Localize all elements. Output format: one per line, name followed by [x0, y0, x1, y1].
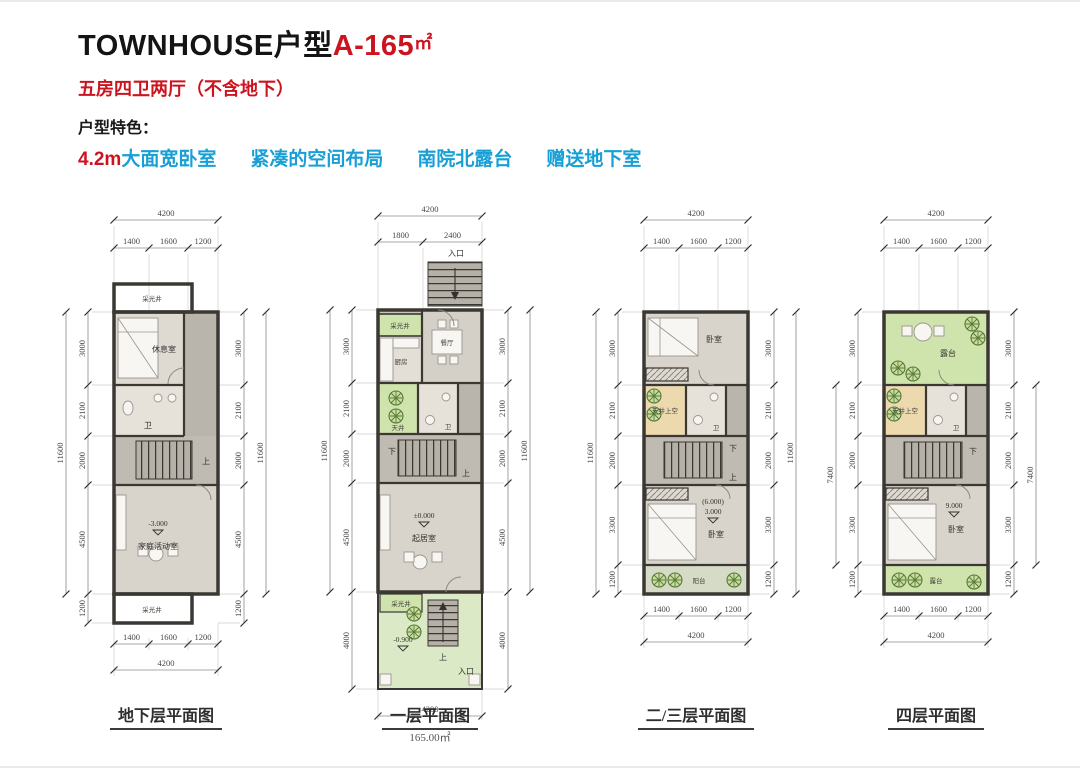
svg-text:1800: 1800 [392, 230, 409, 240]
stairs [398, 440, 456, 476]
stairs [904, 442, 962, 478]
entry-bottom-label: 入口 [458, 667, 474, 676]
stairs [664, 442, 722, 478]
svg-text:1400: 1400 [893, 236, 910, 246]
dim-chain: 140016001200 [641, 604, 752, 620]
feature-list: 4.2m大面宽卧室紧凑的空间布局南院北露台赠送地下室 [78, 144, 641, 171]
plant-icon [891, 361, 905, 375]
svg-text:3000: 3000 [607, 340, 617, 357]
svg-text:3000: 3000 [1003, 340, 1013, 357]
sink [168, 394, 176, 402]
svg-text:2000: 2000 [607, 452, 617, 469]
svg-text:2100: 2100 [847, 402, 857, 419]
sink [950, 393, 958, 401]
svg-text:7400: 7400 [1025, 467, 1035, 484]
garden-level-mark: -0.900 [393, 635, 413, 644]
plant-icon [892, 573, 906, 587]
svg-text:4200: 4200 [158, 208, 175, 218]
dim-chain: 300021002000330012007400 [825, 309, 862, 598]
room-label-balcony: 阳台 [693, 576, 706, 585]
dim-chain: 3000210020004500120011600 [233, 309, 270, 627]
svg-text:4200: 4200 [422, 204, 439, 214]
garden-stairs-up-label: 上 [439, 653, 447, 662]
room-label-bedroom-bottom: 卧室 [708, 529, 724, 539]
svg-text:1200: 1200 [233, 600, 243, 617]
svg-text:3000: 3000 [497, 338, 507, 355]
stairs-up-label: 上 [462, 469, 470, 478]
dim-chain: 4200 [881, 208, 992, 224]
room-label-garden-lightwell: 采光井 [391, 599, 411, 608]
feature-label: 户型特色： [78, 114, 641, 138]
svg-text:2000: 2000 [763, 452, 773, 469]
plan-floor4: 露台 天井上空 卫 下 9.000 卧室 露台 4200 14001600120… [806, 192, 1066, 667]
dim-chain: 3000210020004500400011600 [319, 307, 356, 693]
plant-icon [965, 317, 979, 331]
room-label-bath: 卫 [953, 424, 960, 432]
svg-text:4000: 4000 [341, 632, 351, 649]
dim-chain: 4200 [111, 658, 222, 674]
svg-text:3000: 3000 [233, 340, 243, 357]
terrace-table [914, 323, 932, 341]
svg-text:2000: 2000 [77, 452, 87, 469]
dim-chain: 300021002000330012007400 [1003, 309, 1040, 598]
svg-text:2400: 2400 [444, 230, 461, 240]
svg-text:1200: 1200 [725, 604, 742, 614]
svg-text:4000: 4000 [497, 632, 507, 649]
room-label-terrace-top: 露台 [940, 348, 956, 358]
title-black: TOWNHOUSE户型 [78, 30, 333, 62]
plant-icon [652, 573, 666, 587]
room-label-lightwell-bottom: 采光井 [142, 605, 162, 614]
feature-item: 紧凑的空间布局 [250, 149, 383, 170]
dim-chain: 140016001200 [881, 236, 992, 252]
svg-text:11600: 11600 [55, 443, 65, 464]
feature-red: 4.2m [78, 149, 121, 170]
dim-chain: 4200 [641, 630, 752, 646]
svg-text:1600: 1600 [930, 604, 947, 614]
room-label-lightwell-top: 采光井 [142, 294, 162, 303]
stairs-up-label: 上 [202, 457, 210, 466]
toilet [694, 416, 703, 425]
svg-text:11600: 11600 [255, 443, 265, 464]
level-mark: -3.000 [148, 519, 168, 528]
room-label-lightwell: 采光井 [390, 321, 410, 330]
level-mark: 3.000 [705, 507, 722, 516]
svg-text:3000: 3000 [77, 340, 87, 357]
svg-text:4500: 4500 [77, 531, 87, 548]
svg-text:1200: 1200 [725, 236, 742, 246]
sink [710, 393, 718, 401]
svg-text:1600: 1600 [160, 236, 177, 246]
subtitle: 五房四卫两厅（不含地下） [78, 75, 641, 101]
svg-text:4500: 4500 [233, 531, 243, 548]
sink [154, 394, 162, 402]
svg-text:7400: 7400 [825, 467, 835, 484]
svg-text:1200: 1200 [195, 236, 212, 246]
svg-text:1400: 1400 [653, 236, 670, 246]
feature-item: 大面宽卧室 [121, 149, 216, 170]
wardrobe [886, 488, 928, 500]
caption-floor23: 二/三层平面图 [566, 702, 826, 726]
room-label-patio: 天井 [392, 423, 406, 432]
svg-text:1200: 1200 [847, 571, 857, 588]
svg-text:3000: 3000 [763, 340, 773, 357]
title-unit: ㎡ [414, 33, 433, 53]
plan-basement: 采光井 休息室 卫 上 -3.000 家庭活动室 采光井 4200 140016… [36, 192, 296, 697]
svg-text:3300: 3300 [1003, 517, 1013, 534]
room-label-bath: 卫 [445, 423, 452, 431]
plan-floor23: 卧室 天井上空 卫 下 上 (6.000) 3.000 卧室 阳台 4200 1… [566, 192, 826, 667]
svg-text:3300: 3300 [847, 517, 857, 534]
svg-text:1200: 1200 [965, 604, 982, 614]
svg-text:2100: 2100 [77, 402, 87, 419]
toilet [934, 416, 943, 425]
feature-item: 南院北露台 [417, 149, 512, 170]
svg-text:11600: 11600 [585, 443, 595, 464]
svg-text:4200: 4200 [928, 630, 945, 640]
plant-icon [647, 389, 661, 403]
wardrobe [646, 368, 688, 381]
dim-chain: 3000210020004500120011600 [55, 309, 92, 627]
svg-text:2000: 2000 [497, 450, 507, 467]
table [413, 555, 427, 569]
dim-chain: 4200 [641, 208, 752, 224]
level-mark: 9.000 [946, 501, 963, 510]
room-label-bath: 卫 [713, 424, 720, 432]
stairs-up-label: 上 [729, 473, 737, 482]
dim-chain: 3000210020004500400011600 [497, 307, 534, 693]
stairs [136, 441, 192, 479]
wardrobe [646, 488, 688, 500]
floor1-area: 165.00㎡ [300, 729, 560, 745]
svg-text:1600: 1600 [690, 604, 707, 614]
svg-text:2100: 2100 [233, 402, 243, 419]
room-label-terrace-bottom: 露台 [930, 576, 943, 585]
svg-text:4200: 4200 [158, 658, 175, 668]
svg-text:2100: 2100 [607, 402, 617, 419]
svg-text:1400: 1400 [653, 604, 670, 614]
svg-text:3000: 3000 [847, 340, 857, 357]
stairs-down-label: 下 [969, 447, 977, 456]
svg-text:11600: 11600 [519, 441, 529, 462]
sofa [116, 495, 126, 550]
svg-text:3000: 3000 [341, 338, 351, 355]
plant-icon [389, 391, 403, 405]
feature-item: 赠送地下室 [546, 149, 641, 170]
dim-chain: 4200 [375, 204, 486, 220]
dim-chain: 3000210020003300120011600 [585, 309, 622, 598]
svg-text:1400: 1400 [893, 604, 910, 614]
svg-text:3300: 3300 [607, 517, 617, 534]
sink [442, 393, 450, 401]
svg-text:2000: 2000 [847, 452, 857, 469]
svg-text:4500: 4500 [341, 529, 351, 546]
svg-text:11600: 11600 [319, 441, 329, 462]
svg-text:1200: 1200 [195, 632, 212, 642]
svg-text:2100: 2100 [497, 400, 507, 417]
dim-chain: 3000210020003300120011600 [763, 309, 800, 598]
caption-basement: 地下层平面图 [36, 702, 296, 726]
toilet [426, 416, 435, 425]
dim-chain: 4200 [881, 630, 992, 646]
plan-floor1: 采光井 厨房 餐厅 天井 卫 下 上 ±0.000 起居室 采光井 -0.900… [300, 192, 560, 737]
svg-text:1200: 1200 [1003, 571, 1013, 588]
header: TOWNHOUSE户型A-165㎡ 五房四卫两厅（不含地下） 户型特色： 4.2… [78, 32, 641, 171]
room-label-void: 天井上空 [652, 406, 679, 415]
svg-text:1200: 1200 [763, 571, 773, 588]
room-label-bath: 卫 [144, 421, 152, 430]
plant-icon [908, 573, 922, 587]
svg-text:2100: 2100 [341, 400, 351, 417]
dim-chain: 140016001200 [111, 236, 222, 252]
toilet [123, 401, 133, 415]
sofa [380, 495, 390, 550]
svg-text:4200: 4200 [928, 208, 945, 218]
stairs-down-label: 下 [388, 447, 396, 456]
svg-text:4200: 4200 [688, 630, 705, 640]
svg-text:4200: 4200 [688, 208, 705, 218]
dim-chain: 140016001200 [111, 632, 222, 648]
svg-text:1400: 1400 [123, 236, 140, 246]
caption-floor4: 四层平面图 [806, 702, 1066, 726]
kitchen-counter [380, 338, 393, 381]
svg-text:2000: 2000 [341, 450, 351, 467]
dim-chain: 4200 [111, 208, 222, 224]
title-red: A-165 [333, 30, 415, 62]
svg-text:4500: 4500 [497, 529, 507, 546]
room-label-void: 天井上空 [892, 406, 919, 415]
plant-icon [906, 367, 920, 381]
level-mark: ±0.000 [414, 511, 435, 520]
svg-text:1200: 1200 [607, 571, 617, 588]
plant-icon [389, 409, 403, 423]
svg-text:1400: 1400 [123, 632, 140, 642]
plant-icon [727, 573, 741, 587]
dim-chain: 140016001200 [881, 604, 992, 620]
stairs-down-label: 下 [729, 444, 737, 453]
plant-icon [668, 573, 682, 587]
room-label-bedroom: 卧室 [948, 524, 964, 534]
caption-floor1: 一层平面图 [300, 702, 560, 726]
room-label-bedroom-top: 卧室 [706, 334, 722, 344]
level-mark-alt: (6.000) [702, 497, 724, 506]
page-title: TOWNHOUSE户型A-165㎡ [78, 32, 641, 61]
room-label-living: 起居室 [412, 533, 436, 543]
svg-text:2100: 2100 [763, 402, 773, 419]
plant-icon [971, 331, 985, 345]
dim-chain: 140016001200 [641, 236, 752, 252]
room-label-family: 家庭活动室 [138, 541, 178, 551]
room-label-kitchen: 厨房 [395, 357, 408, 366]
entry-top-label: 入口 [448, 249, 464, 258]
room-label-dining: 餐厅 [441, 338, 455, 347]
svg-text:3300: 3300 [763, 517, 773, 534]
svg-text:11600: 11600 [785, 443, 795, 464]
svg-text:1200: 1200 [965, 236, 982, 246]
floorplan-sheet: TOWNHOUSE户型A-165㎡ 五房四卫两厅（不含地下） 户型特色： 4.2… [0, 0, 1080, 768]
room-label-restroom: 休息室 [152, 344, 176, 354]
plant-icon [887, 389, 901, 403]
svg-text:2000: 2000 [233, 452, 243, 469]
dim-chain: 18002400 [375, 230, 486, 246]
plant-icon [967, 575, 981, 589]
plant-icon [407, 607, 421, 621]
svg-text:1600: 1600 [690, 236, 707, 246]
svg-text:1600: 1600 [160, 632, 177, 642]
svg-text:1200: 1200 [77, 600, 87, 617]
svg-text:2000: 2000 [1003, 452, 1013, 469]
svg-text:1600: 1600 [930, 236, 947, 246]
svg-text:2100: 2100 [1003, 402, 1013, 419]
